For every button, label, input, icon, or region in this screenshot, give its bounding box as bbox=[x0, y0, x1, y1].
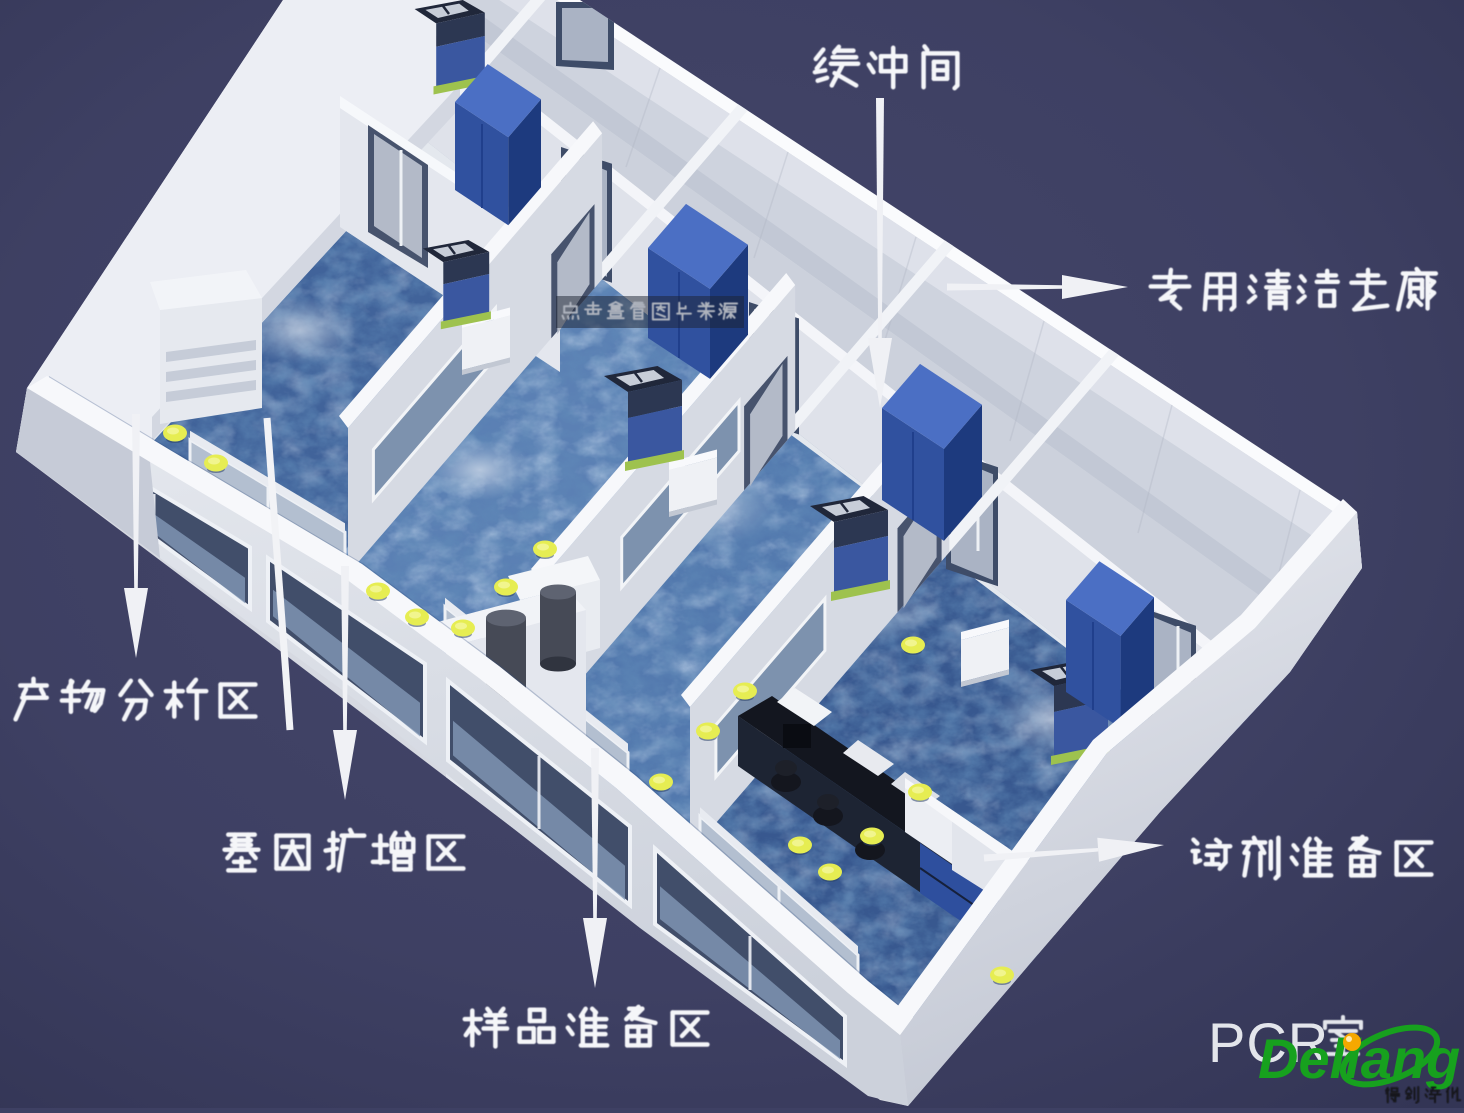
svg-text:Deliang: Deliang bbox=[1258, 1027, 1460, 1090]
